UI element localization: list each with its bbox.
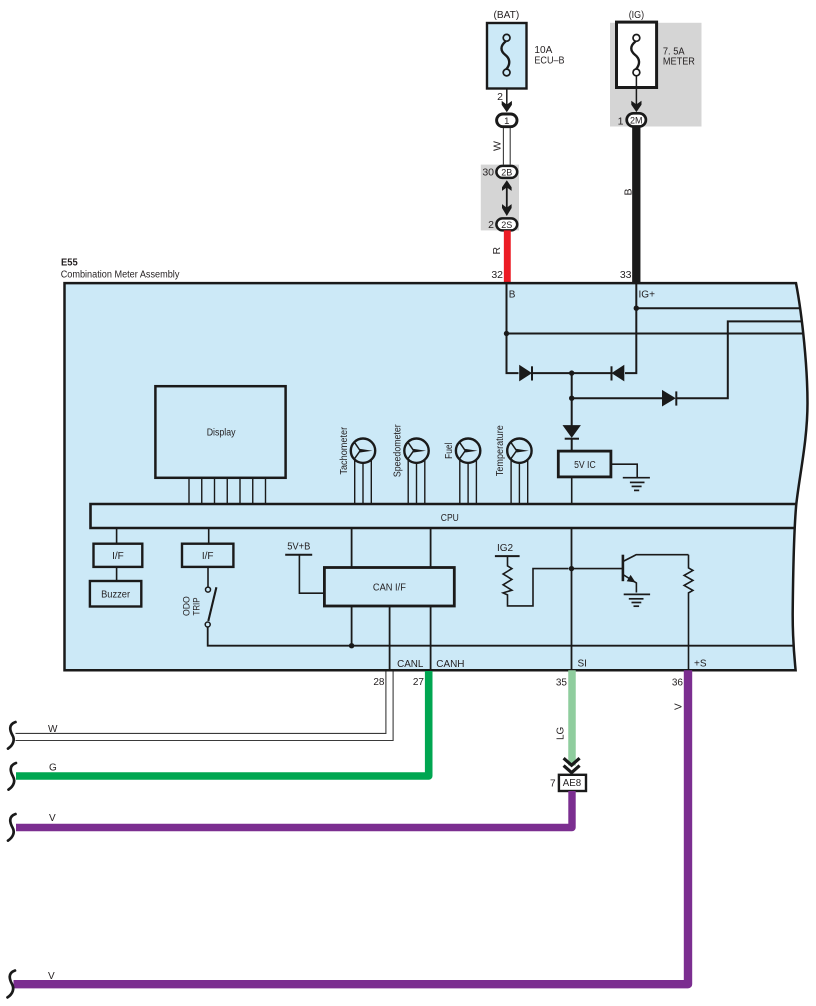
svg-text:I/F: I/F [112, 551, 124, 562]
svg-text:ECU–B: ECU–B [534, 56, 564, 67]
svg-text:I/F: I/F [202, 551, 214, 562]
svg-text:1: 1 [504, 116, 509, 127]
svg-text:AE8: AE8 [563, 778, 582, 789]
svg-text:2: 2 [497, 91, 503, 103]
svg-text:2: 2 [488, 219, 494, 231]
svg-text:Speedometer: Speedometer [392, 424, 403, 477]
svg-text:(BAT): (BAT) [494, 10, 520, 21]
svg-text:W: W [48, 724, 58, 735]
svg-text:10A: 10A [534, 45, 552, 56]
svg-text:V: V [49, 813, 56, 824]
svg-text:G: G [49, 763, 57, 774]
svg-text:CPU: CPU [441, 513, 459, 524]
svg-text:5V+B: 5V+B [287, 541, 311, 552]
svg-text:30: 30 [482, 167, 494, 179]
svg-text:32: 32 [491, 269, 503, 281]
svg-text:Tachometer: Tachometer [339, 426, 350, 474]
svg-text:2B: 2B [501, 168, 512, 178]
svg-text:35: 35 [556, 678, 568, 689]
svg-text:(IG): (IG) [629, 10, 644, 21]
svg-text:7: 7 [550, 779, 556, 790]
svg-text:Temperature: Temperature [495, 425, 506, 476]
svg-text:Buzzer: Buzzer [101, 589, 131, 600]
svg-text:33: 33 [620, 269, 632, 281]
svg-text:2M: 2M [630, 116, 643, 126]
svg-text:Combination Meter Assembly: Combination Meter Assembly [61, 270, 180, 281]
svg-text:IG2: IG2 [497, 543, 514, 554]
svg-text:+S: +S [694, 659, 707, 670]
svg-text:V: V [48, 971, 55, 982]
svg-text:W: W [492, 141, 504, 151]
svg-text:Fuel: Fuel [444, 443, 455, 459]
svg-text:B: B [623, 188, 635, 195]
svg-text:2S: 2S [501, 220, 512, 230]
svg-text:5V IC: 5V IC [574, 460, 596, 471]
svg-text:V: V [674, 703, 685, 710]
svg-text:LG: LG [556, 726, 567, 740]
svg-text:CANH: CANH [436, 659, 464, 670]
svg-text:CAN I/F: CAN I/F [373, 583, 406, 594]
svg-text:TRIP: TRIP [192, 598, 203, 616]
svg-text:METER: METER [663, 56, 695, 67]
svg-text:B: B [509, 289, 516, 300]
svg-text:R: R [491, 247, 503, 255]
svg-text:27: 27 [413, 677, 425, 688]
svg-text:IG+: IG+ [639, 289, 656, 300]
svg-text:36: 36 [672, 678, 684, 689]
svg-text:28: 28 [373, 677, 385, 688]
svg-text:Display: Display [207, 427, 236, 438]
svg-text:E55: E55 [61, 258, 78, 269]
svg-text:CANL: CANL [397, 659, 424, 670]
svg-text:SI: SI [578, 659, 587, 670]
svg-text:1: 1 [618, 116, 624, 128]
